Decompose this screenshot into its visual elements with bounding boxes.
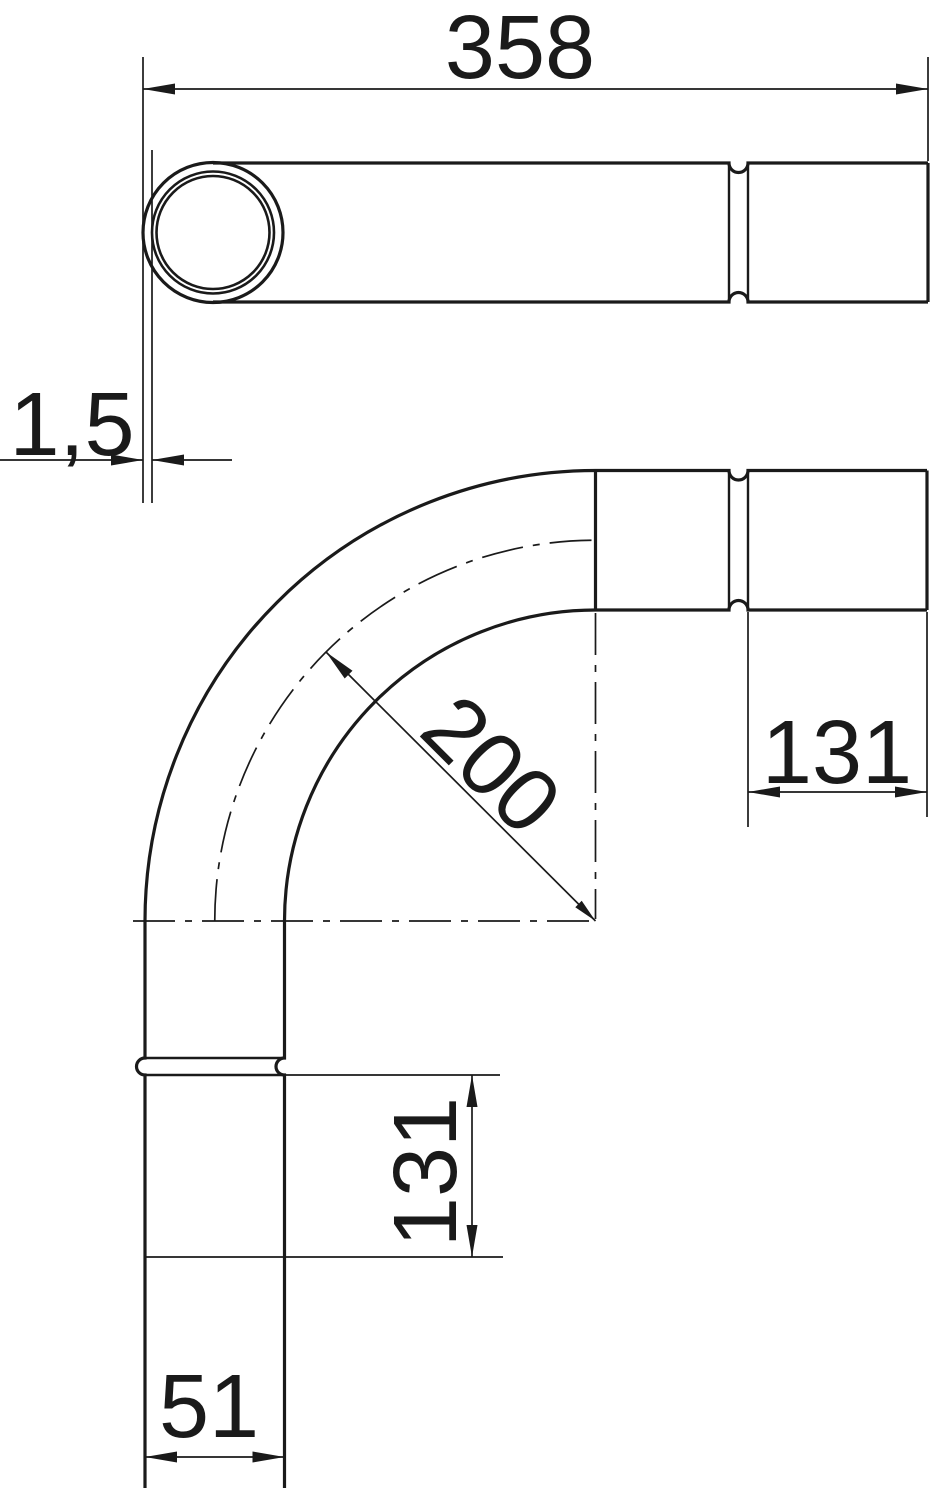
dimension-label-total-length: 358	[445, 0, 595, 98]
outer-diameter-circle	[143, 163, 283, 303]
arrowhead-right	[152, 455, 184, 466]
bend-view: 200 131 131 51	[133, 471, 927, 1488]
bend-outline	[137, 471, 928, 1488]
tube-top-edge	[213, 163, 928, 173]
tube-outline	[213, 163, 928, 302]
arrowhead-right	[896, 84, 928, 95]
technical-drawing-sheet: 358 1,5	[0, 0, 931, 1488]
dimension-wall-thickness: 1,5	[0, 150, 232, 503]
tube-bottom-edge	[213, 293, 928, 303]
outer-edge	[137, 471, 596, 1488]
dimension-socket-width: 51	[145, 1357, 285, 1463]
top-view-tube: 358 1,5	[0, 0, 928, 503]
dimension-total-length: 358	[143, 0, 928, 503]
horizontal-pipe-bottom-edge	[596, 601, 928, 611]
tube-end-circles	[143, 163, 283, 303]
wall-outer-circle	[152, 172, 274, 294]
dimension-label-plain-end-right: 131	[762, 703, 912, 803]
arrowhead-left	[143, 84, 175, 95]
arrowhead-arc-end	[326, 652, 353, 679]
dimension-label-wall-thickness: 1,5	[9, 375, 134, 475]
horizontal-pipe-top-edge	[596, 471, 928, 481]
dimension-label-plain-end-bottom: 131	[376, 1097, 476, 1247]
dimension-bend-radius: 200	[326, 652, 596, 921]
dimension-plain-end-right: 131	[748, 612, 927, 827]
dimension-label-bend-radius: 200	[402, 677, 579, 854]
pipe-bend-technical-drawing: 358 1,5	[0, 0, 931, 1488]
dimension-label-socket-width: 51	[159, 1357, 259, 1457]
wall-inner-circle	[157, 176, 270, 289]
dimension-plain-end-bottom: 131	[285, 1075, 504, 1257]
